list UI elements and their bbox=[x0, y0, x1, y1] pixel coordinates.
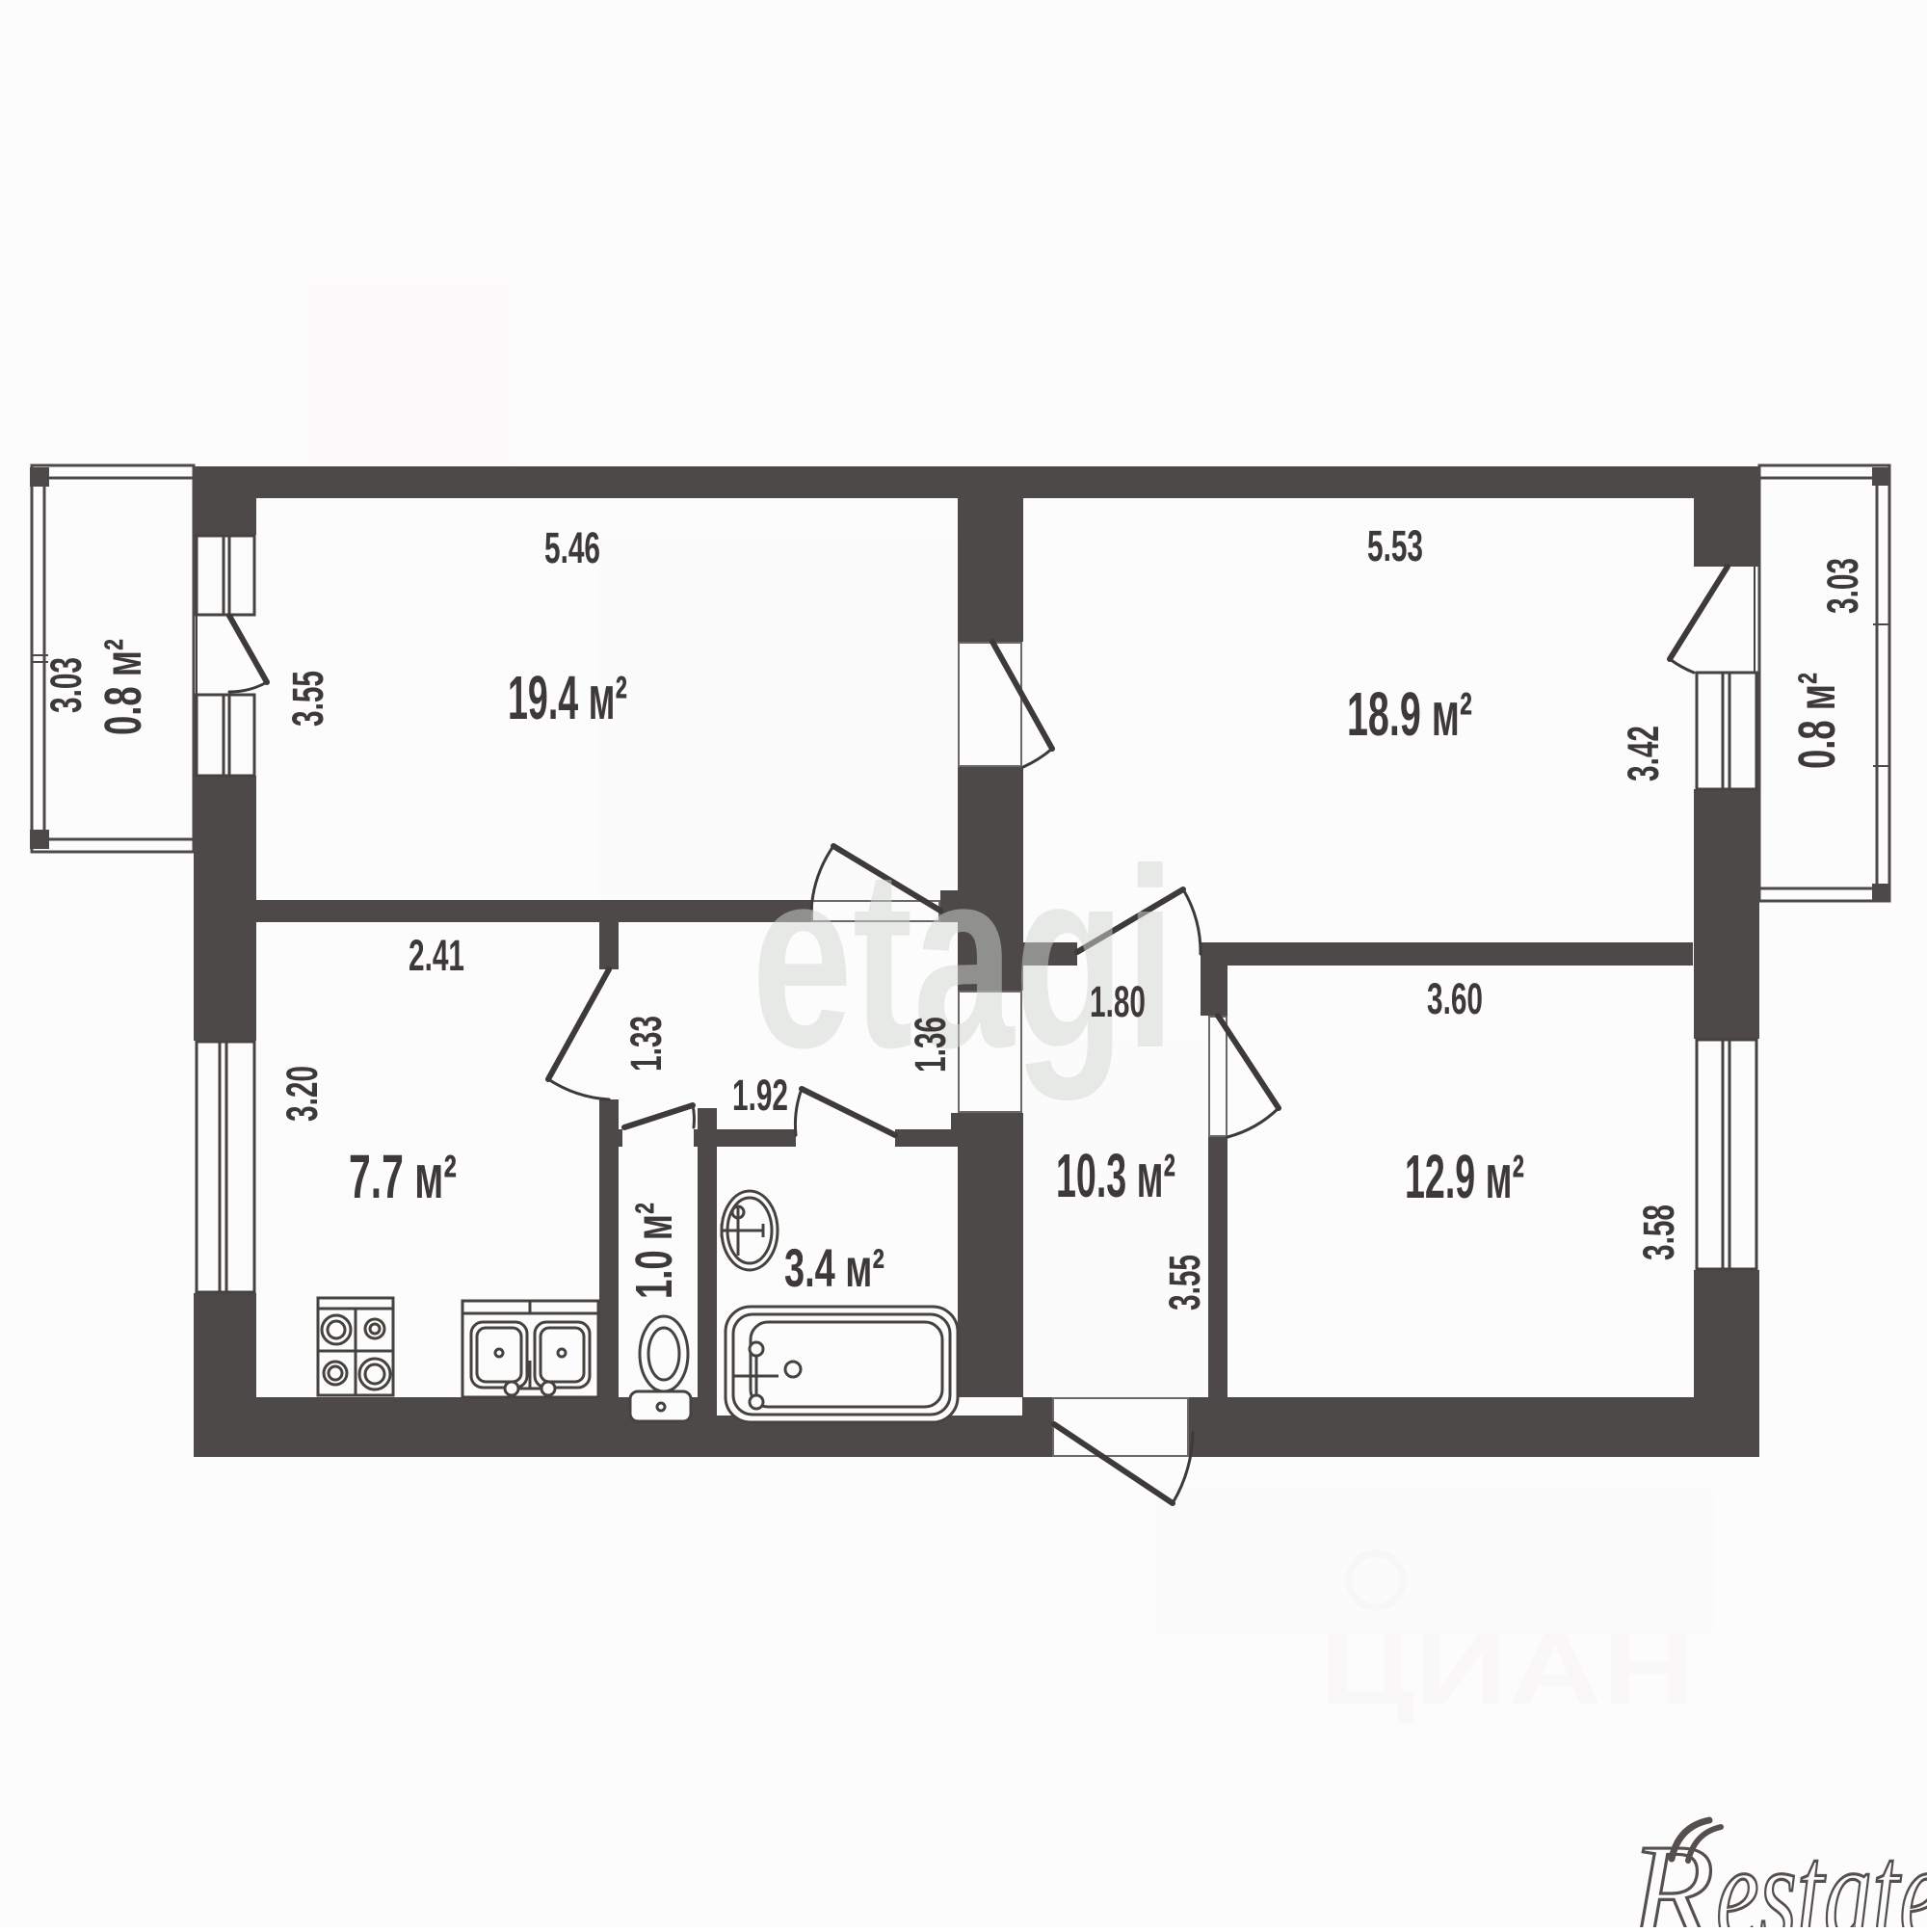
svg-text:18.9 м²: 18.9 м² bbox=[1347, 679, 1472, 749]
svg-text:1.33: 1.33 bbox=[621, 1016, 671, 1072]
svg-text:3.60: 3.60 bbox=[1427, 974, 1483, 1023]
svg-text:R: R bbox=[1628, 1816, 1715, 1927]
svg-text:10.3 м²: 10.3 м² bbox=[1056, 1141, 1175, 1210]
svg-text:3.20: 3.20 bbox=[277, 1066, 327, 1122]
svg-text:3.55: 3.55 bbox=[1160, 1255, 1209, 1310]
svg-text:3.42: 3.42 bbox=[1619, 726, 1668, 781]
svg-text:etagi: etagi bbox=[752, 816, 1175, 1102]
svg-text:estate: estate bbox=[1716, 1816, 1927, 1927]
svg-text:0.8 м²: 0.8 м² bbox=[94, 639, 152, 735]
svg-text:5.53: 5.53 bbox=[1367, 521, 1423, 570]
svg-text:7.7 м²: 7.7 м² bbox=[349, 1142, 457, 1211]
svg-text:ЦИАН: ЦИАН bbox=[1320, 1613, 1696, 1726]
svg-text:3.55: 3.55 bbox=[283, 671, 332, 727]
svg-text:0.8 м²: 0.8 м² bbox=[1788, 673, 1846, 769]
svg-text:5.46: 5.46 bbox=[544, 523, 600, 572]
svg-text:3.4 м²: 3.4 м² bbox=[784, 1237, 884, 1298]
svg-text:3.58: 3.58 bbox=[1634, 1204, 1683, 1260]
svg-text:2.41: 2.41 bbox=[409, 931, 464, 980]
svg-text:1.36: 1.36 bbox=[906, 1017, 955, 1072]
svg-text:3.03: 3.03 bbox=[41, 657, 91, 713]
svg-text:1.0 м²: 1.0 м² bbox=[625, 1203, 683, 1299]
svg-text:3.03: 3.03 bbox=[1818, 558, 1867, 614]
svg-text:1.80: 1.80 bbox=[1090, 977, 1146, 1026]
svg-text:19.4 м²: 19.4 м² bbox=[508, 663, 627, 732]
svg-text:1.92: 1.92 bbox=[732, 1071, 788, 1120]
svg-text:12.9 м²: 12.9 м² bbox=[1405, 1142, 1524, 1211]
